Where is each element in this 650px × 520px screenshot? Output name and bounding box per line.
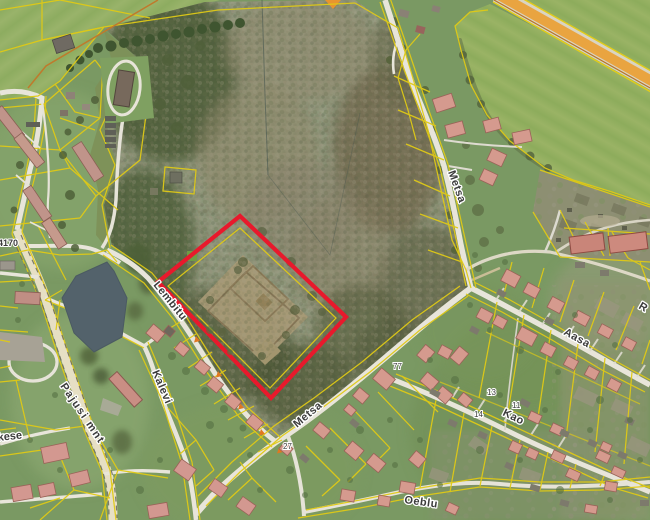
svg-text:14: 14 [474,410,483,419]
svg-text:4170: 4170 [0,238,18,248]
svg-text:27: 27 [283,442,292,451]
svg-text:11: 11 [512,401,521,410]
svg-text:13: 13 [487,388,496,397]
